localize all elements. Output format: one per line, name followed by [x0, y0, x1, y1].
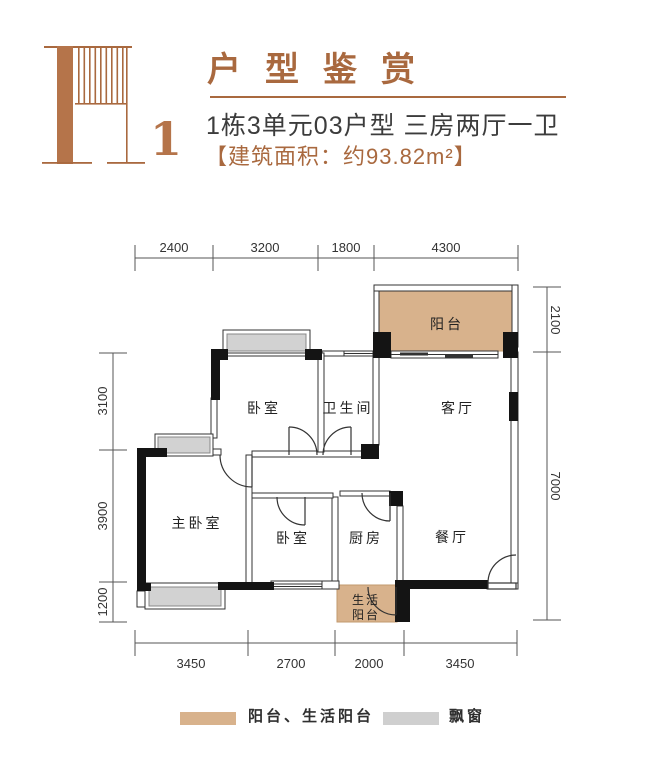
- room-label-bedroom-mid: 卧室: [276, 530, 310, 546]
- windows: [271, 351, 498, 589]
- dimension-top: 2400 3200 1800 4300: [135, 240, 518, 271]
- legend-label-bay-window: 飘窗: [449, 705, 485, 726]
- dimension-right: 2100 7000: [533, 287, 563, 620]
- room-label-balcony: 阳台: [430, 316, 464, 332]
- room-label-living-room: 客厅: [441, 400, 475, 416]
- room-label-service-balcony-1: 生活: [352, 593, 380, 607]
- floor-plan: 阳台 卧室 卫生间 客厅 主卧室 卧室 厨房 餐厅 生活 阳台 2400 320…: [0, 0, 657, 761]
- dim-left-2: 3900: [95, 502, 110, 531]
- black-walls: [137, 332, 518, 622]
- room-label-bedroom-top: 卧室: [247, 400, 281, 416]
- dim-right-1: 2100: [548, 306, 563, 335]
- legend-swatch-bay-window: [383, 712, 439, 725]
- bay-windows: [145, 330, 310, 609]
- dim-left-1: 3100: [95, 387, 110, 416]
- floor-plan-poster: 1 户型鉴赏 1栋3单元03户型 三房两厅一卫 【建筑面积：约93.82m²】: [0, 0, 657, 761]
- dim-left-3: 1200: [95, 588, 110, 617]
- room-label-service-balcony-2: 阳台: [352, 607, 380, 622]
- dimension-left: 3100 3900 1200: [95, 353, 127, 622]
- dim-bottom-4: 3450: [446, 656, 475, 671]
- dim-bottom-3: 2000: [355, 656, 384, 671]
- legend-swatch-balcony: [180, 712, 236, 725]
- room-label-dining-room: 餐厅: [435, 529, 469, 545]
- dim-top-4: 4300: [432, 240, 461, 255]
- room-label-bathroom: 卫生间: [323, 400, 374, 416]
- dim-top-2: 3200: [251, 240, 280, 255]
- dimension-bottom: 3450 2700 2000 3450: [135, 630, 517, 671]
- dim-top-1: 2400: [160, 240, 189, 255]
- dim-bottom-2: 2700: [277, 656, 306, 671]
- dim-top-3: 1800: [332, 240, 361, 255]
- legend-label-balcony: 阳台、生活阳台: [248, 705, 374, 726]
- room-label-kitchen: 厨房: [349, 530, 383, 546]
- dim-right-2: 7000: [548, 472, 563, 501]
- dim-bottom-1: 3450: [177, 656, 206, 671]
- room-label-master-bedroom: 主卧室: [172, 515, 223, 531]
